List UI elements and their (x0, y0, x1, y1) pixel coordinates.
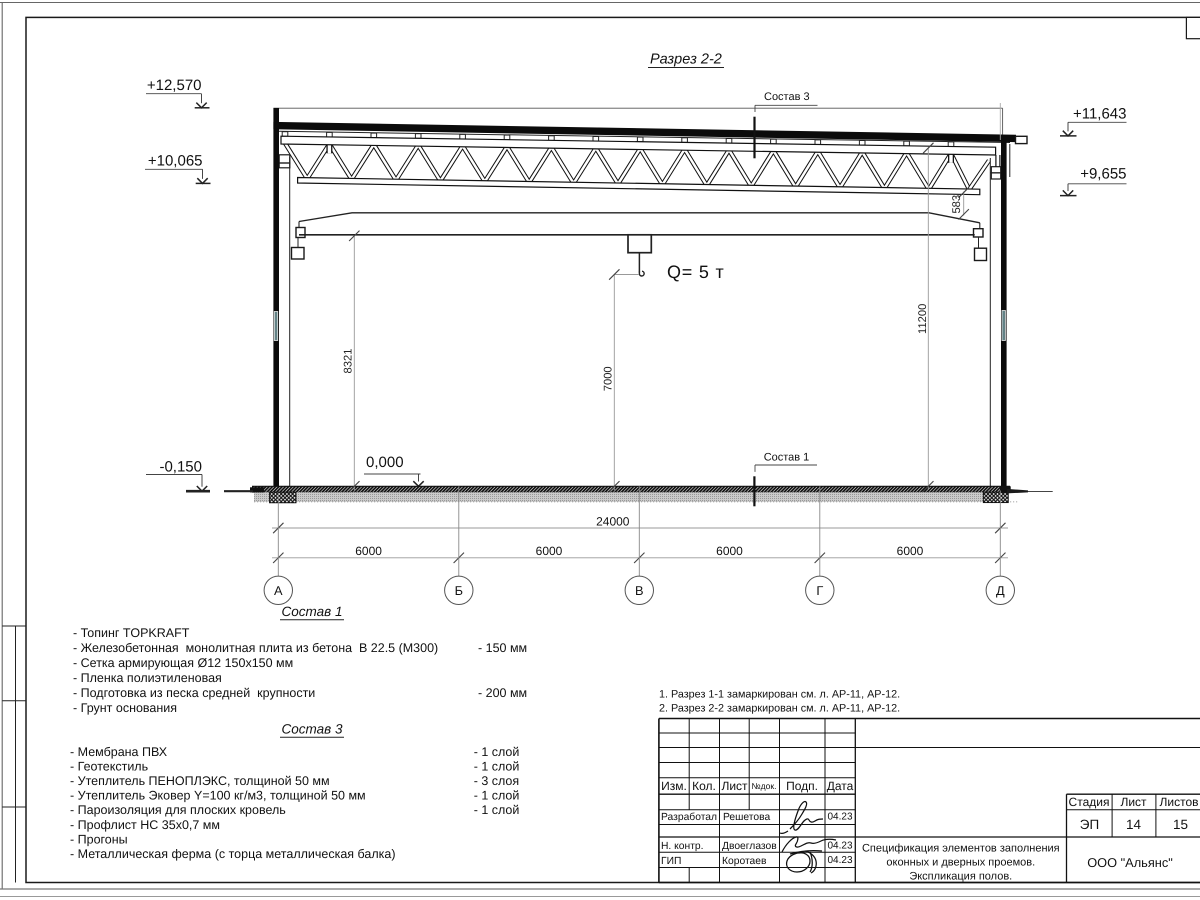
svg-text:- Подготовка из песка средней: - Подготовка из песка средней крупности (73, 686, 315, 700)
svg-text:+12,570: +12,570 (147, 77, 202, 94)
svg-text:№док.: №док. (752, 781, 777, 791)
svg-text:Состав 1: Состав 1 (282, 604, 343, 619)
svg-text:- Утеплитель ПЕНОПЛЭКС, толщин: - Утеплитель ПЕНОПЛЭКС, толщиной 50 мм (70, 774, 330, 788)
svg-text:1. Разрез 1-1 замаркирован см.: 1. Разрез 1-1 замаркирован см. л. АР-11,… (659, 689, 900, 701)
svg-text:04.23: 04.23 (827, 812, 852, 823)
svg-text:- Профлист НС 35х0,7 мм: - Профлист НС 35х0,7 мм (70, 818, 220, 832)
svg-text:0,000: 0,000 (366, 454, 404, 471)
svg-text:-0,150: -0,150 (159, 458, 202, 475)
svg-text:Решетова: Решетова (723, 812, 770, 823)
svg-text:+10,065: +10,065 (148, 153, 203, 170)
svg-text:Дата: Дата (827, 779, 854, 793)
svg-text:- 1 слой: - 1 слой (474, 789, 520, 803)
svg-text:- Сетка армирующая Ø12 150х150: - Сетка армирующая Ø12 150х150 мм (73, 656, 293, 670)
svg-text:- 200 мм: - 200 мм (478, 686, 527, 700)
svg-text:- 1 слой: - 1 слой (474, 745, 520, 759)
svg-text:7000: 7000 (603, 366, 615, 391)
svg-text:583: 583 (951, 195, 963, 214)
svg-text:- Металлическая ферма (с торца: - Металлическая ферма (с торца металличе… (70, 847, 396, 861)
svg-text:Кол.: Кол. (692, 779, 716, 793)
svg-text:+11,643: +11,643 (1073, 106, 1127, 123)
svg-text:2. Разрез 2-2 замаркирован см.: 2. Разрез 2-2 замаркирован см. л. АР-11,… (659, 703, 900, 715)
svg-text:11200: 11200 (917, 304, 929, 334)
svg-text:8321: 8321 (342, 349, 354, 374)
svg-text:Разрез 2-2: Разрез 2-2 (650, 52, 722, 68)
svg-text:Экспликация полов.: Экспликация полов. (909, 871, 1012, 883)
svg-text:- Утеплитель Эковер Y=100 кг/м: - Утеплитель Эковер Y=100 кг/м3, толщино… (70, 789, 366, 803)
svg-text:ГИП: ГИП (661, 856, 681, 867)
svg-text:Q= 5 т: Q= 5 т (667, 262, 725, 282)
svg-text:- Пароизоляция для плоских кро: - Пароизоляция для плоских кровель (70, 803, 286, 817)
svg-text:Д: Д (996, 583, 1005, 598)
svg-text:6000: 6000 (897, 544, 924, 558)
svg-text:Лист: Лист (1120, 795, 1147, 809)
svg-text:Листов: Листов (1160, 795, 1199, 809)
svg-text:24000: 24000 (596, 514, 630, 528)
svg-text:- Пленка полиэтиленовая: - Пленка полиэтиленовая (73, 671, 222, 685)
svg-text:15: 15 (1173, 817, 1188, 832)
svg-text:Коротаев: Коротаев (722, 856, 767, 867)
svg-text:Спецификация элементов заполне: Спецификация элементов заполнения (862, 843, 1060, 855)
svg-text:- 1 слой: - 1 слой (474, 803, 520, 817)
svg-text:В: В (635, 583, 644, 598)
svg-text:6000: 6000 (536, 544, 563, 558)
svg-text:Г: Г (816, 583, 823, 598)
svg-text:- Прогоны: - Прогоны (70, 832, 128, 846)
svg-text:Состав 3: Состав 3 (282, 721, 343, 736)
svg-text:14: 14 (1126, 817, 1142, 832)
svg-text:Разработал: Разработал (661, 812, 717, 823)
svg-text:Н. контр.: Н. контр. (661, 841, 704, 852)
svg-text:- 1 слой: - 1 слой (474, 759, 520, 773)
svg-text:+9,655: +9,655 (1080, 166, 1126, 183)
svg-text:6000: 6000 (355, 544, 382, 558)
svg-text:04.23: 04.23 (827, 855, 852, 866)
svg-text:Состав 1: Состав 1 (764, 452, 810, 464)
svg-text:- Геотекстиль: - Геотекстиль (70, 759, 148, 773)
svg-text:Изм.: Изм. (661, 779, 687, 793)
svg-text:Стадия: Стадия (1069, 795, 1110, 809)
svg-text:6000: 6000 (716, 544, 743, 558)
svg-text:ЭП: ЭП (1080, 817, 1099, 832)
svg-text:оконных и дверных проемов.: оконных и дверных проемов. (886, 857, 1035, 869)
svg-text:Б: Б (455, 583, 463, 598)
svg-text:- 3 слоя: - 3 слоя (474, 774, 519, 788)
svg-text:А: А (274, 583, 283, 598)
svg-text:- Железобетонная монолитная п: - Железобетонная монолитная плита из бет… (73, 641, 438, 655)
svg-text:- Топинг TOPKRAFT: - Топинг TOPKRAFT (73, 626, 190, 640)
svg-text:Состав 3: Состав 3 (764, 91, 810, 103)
svg-text:- Мембрана ПВХ: - Мембрана ПВХ (70, 745, 168, 759)
svg-text:- 150 мм: - 150 мм (478, 641, 527, 655)
svg-text:- Грунт основания: - Грунт основания (73, 701, 177, 715)
svg-text:Подп.: Подп. (786, 779, 818, 793)
svg-text:ООО "Альянс": ООО "Альянс" (1087, 855, 1173, 870)
svg-text:Лист: Лист (721, 779, 748, 793)
svg-text:Двоеглазов: Двоеглазов (722, 841, 777, 852)
svg-text:04.23: 04.23 (827, 840, 852, 851)
